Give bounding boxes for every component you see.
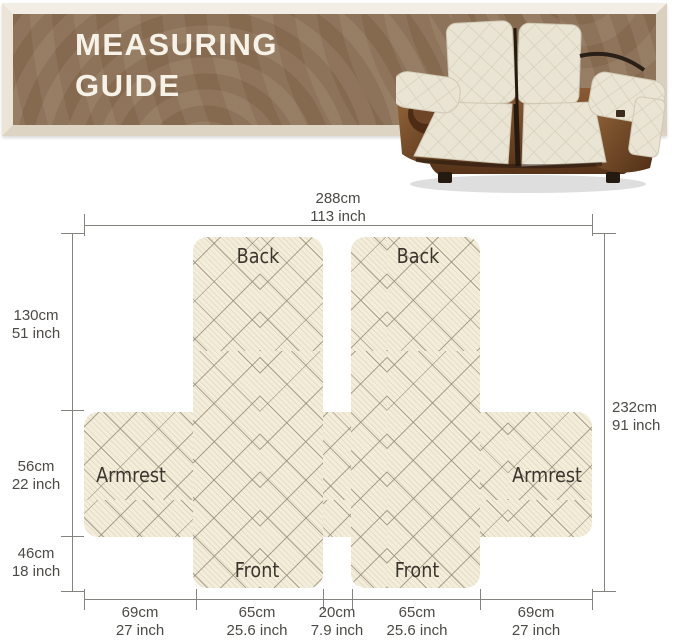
label-back-left: Back [237, 244, 280, 268]
label-front-right: Front [395, 558, 440, 582]
dim-tick [593, 591, 616, 592]
dim-armrest-depth: 56cm 22 inch [4, 458, 68, 494]
dim-seat-right-width: 65cm 25.6 inch [362, 604, 472, 640]
label-armrest-left: Armrest [96, 463, 166, 487]
label-back-right: Back [397, 244, 440, 268]
dim-back-height: 130cm 51 inch [4, 307, 68, 343]
dim-total-length: 232cm 91 inch [612, 399, 679, 435]
dim-tick [592, 589, 593, 610]
dim-front-drop: 46cm 18 inch [4, 545, 68, 581]
measuring-guide-infographic: MEASURING GUIDE [0, 0, 679, 640]
cover-panel-left-column [193, 237, 323, 588]
recliner-loveseat-illustration [396, 14, 666, 196]
dim-armrest-left-width: 69cm 27 inch [90, 604, 190, 640]
recliner-loveseat-image [396, 14, 666, 196]
dim-armrest-right-width: 69cm 27 inch [486, 604, 586, 640]
dim-tick [61, 410, 84, 411]
dim-tick [84, 589, 85, 610]
dim-tick [480, 589, 481, 610]
dim-line-right [604, 233, 605, 591]
dim-line-left [72, 233, 73, 591]
cover-panel-right-column [351, 237, 480, 588]
dim-line-bottom [84, 599, 592, 600]
dim-total-width: 288cm 113 inch [278, 190, 398, 226]
label-front-left: Front [235, 558, 280, 582]
brand-logo-tag [616, 110, 625, 117]
label-armrest-right: Armrest [512, 463, 582, 487]
dim-tick [61, 591, 84, 592]
page-title-line2: GUIDE [75, 65, 278, 106]
page-title-line1: MEASURING [75, 24, 278, 65]
dim-tick [593, 233, 616, 234]
dim-tick [196, 589, 197, 610]
page-title: MEASURING GUIDE [75, 24, 278, 106]
dim-tick [61, 536, 84, 537]
dim-tick [61, 233, 84, 234]
dim-tick [84, 214, 85, 236]
